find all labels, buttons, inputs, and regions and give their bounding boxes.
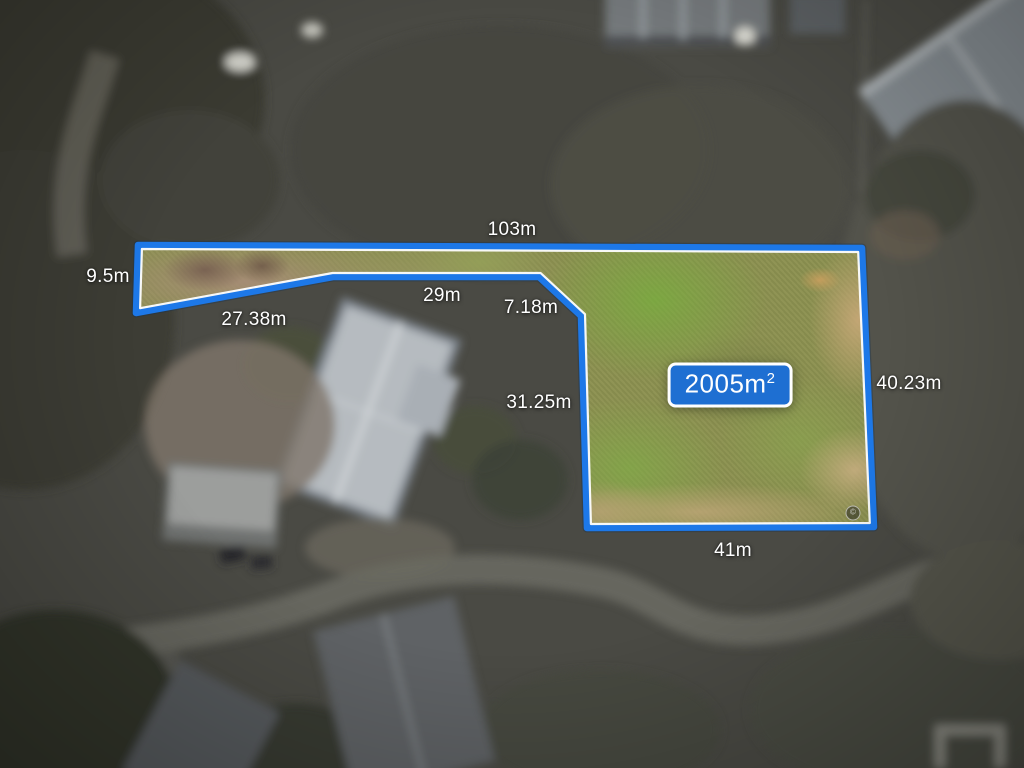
area-exponent: 2: [767, 370, 776, 387]
dimension-label-right: 40.23m: [876, 373, 941, 395]
dimension-label-left: 9.5m: [86, 266, 129, 288]
area-value: 2005m: [685, 369, 767, 399]
area-badge: 2005m2: [668, 363, 793, 408]
dimension-label-bottom: 41m: [714, 540, 752, 562]
dimension-label-step-vertical: 31.25m: [506, 392, 571, 414]
lot-boundary: [0, 0, 1024, 768]
copyright-watermark-icon: ©: [846, 506, 861, 521]
dimension-label-top: 103m: [488, 219, 537, 241]
dimension-label-step-top: 29m: [423, 285, 461, 307]
aerial-photo: 103m 9.5m 27.38m 29m 7.18m 31.25m 40.23m…: [0, 0, 1024, 768]
dimension-label-lower-left: 27.38m: [221, 309, 286, 331]
dimension-label-step-diagonal: 7.18m: [504, 297, 558, 319]
